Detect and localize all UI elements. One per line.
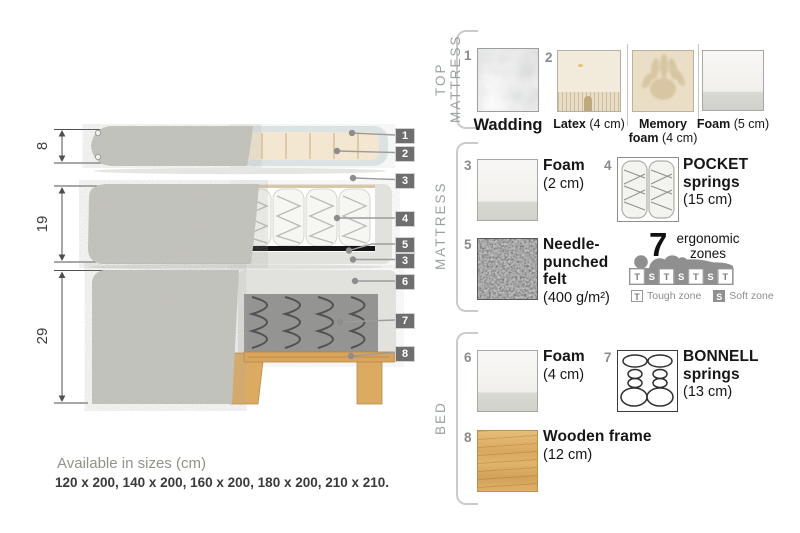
bonnell-springs-image (617, 350, 678, 412)
svg-text:S: S (707, 272, 713, 283)
svg-text:S: S (678, 272, 684, 283)
ergonomic-zones-strip: T S T S T S T (622, 250, 744, 287)
memory-foam-image (632, 50, 694, 112)
mattress-foam-caption: Foam(2 cm) (543, 157, 613, 192)
top-mattress-drawing (91, 126, 388, 174)
sizes-title: Available in sizes (cm) (57, 455, 206, 472)
callout-3: 3 (395, 173, 415, 189)
svg-text:T: T (693, 272, 699, 283)
latex-image (557, 50, 621, 112)
wadding-caption: Wadding (460, 116, 556, 135)
bed-section-label: BED (433, 330, 451, 506)
tough-zone-key: T (631, 290, 643, 302)
bed-drawing (92, 270, 396, 404)
wadding-image (477, 48, 539, 112)
callout-3b: 3 (395, 253, 415, 269)
felt-number: 5 (464, 237, 472, 252)
top-foam-image (702, 50, 764, 111)
dim-bed: 29 (34, 328, 51, 345)
callout-7: 7 (395, 313, 415, 329)
callout-5: 5 (395, 237, 415, 253)
bed-foam-number: 6 (464, 350, 472, 365)
infographic-page: 8 19 29 (0, 0, 800, 533)
dim-mattress: 19 (34, 216, 51, 233)
top-foam-caption: Foam (5 cm) (688, 117, 778, 131)
svg-text:S: S (649, 272, 655, 283)
dimension-values: 8 19 29 (34, 142, 51, 345)
pocket-springs-image (617, 157, 679, 222)
wooden-frame-image (477, 430, 538, 492)
callout-6: 6 (395, 274, 415, 290)
option-divider-2 (698, 44, 699, 126)
mattress-section-label: MATTRESS (433, 140, 451, 312)
felt-image (477, 238, 538, 300)
mattress-foam-number: 3 (464, 158, 472, 173)
tough-zone-label: Tough zone (647, 290, 701, 302)
callout-1: 1 (395, 128, 415, 144)
frame-number: 8 (464, 430, 472, 445)
wadding-number: 1 (464, 48, 472, 63)
zone-legend: T Tough zone S Soft zone (631, 290, 774, 302)
svg-text:T: T (634, 272, 640, 283)
svg-text:T: T (722, 272, 728, 283)
top-mattress-section-label: TOP MATTRESS (433, 28, 451, 130)
wooden-frame-layer (230, 352, 395, 404)
bed-foam-caption: Foam(4 cm) (543, 348, 613, 383)
pocket-number: 4 (604, 158, 612, 173)
svg-text:T: T (664, 272, 670, 283)
option-divider-1 (627, 44, 628, 126)
bonnell-caption: BONNELL springs(13 cm) (683, 348, 768, 400)
bed-foam-image (477, 350, 538, 412)
callout-2: 2 (395, 146, 415, 162)
callout-4: 4 (395, 211, 415, 227)
felt-caption: Needle-punched felt(400 g/m²) (543, 236, 621, 306)
dim-top-mattress: 8 (34, 142, 51, 150)
latex-number: 2 (545, 50, 553, 65)
bed-cross-section-diagram: 8 19 29 (0, 0, 430, 533)
frame-caption: Wooden frame(12 cm) (543, 428, 673, 463)
sizes-list: 120 x 200, 140 x 200, 160 x 200, 180 x 2… (55, 475, 389, 490)
soft-zone-key: S (713, 290, 725, 302)
bonnell-number: 7 (604, 350, 612, 365)
callout-8: 8 (395, 346, 415, 362)
sleeper-silhouette (634, 255, 733, 269)
soft-zone-label: Soft zone (729, 290, 773, 302)
latex-caption: Latex (4 cm) (544, 117, 634, 131)
mattress-drawing (87, 184, 392, 270)
pocket-caption: POCKET springs(15 cm) (683, 156, 765, 208)
mattress-foam-image (477, 159, 538, 221)
